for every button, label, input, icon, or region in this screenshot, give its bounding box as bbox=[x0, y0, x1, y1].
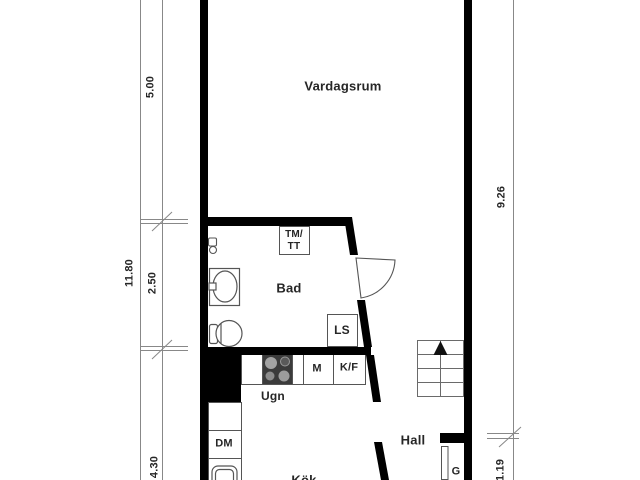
room-label-bath: Bad bbox=[276, 282, 301, 295]
dim-right-upper: 9.26 bbox=[497, 186, 508, 208]
washer-dryer-line2: TT bbox=[285, 241, 303, 253]
micro-label: M bbox=[312, 364, 321, 375]
dim-right-lower: 1.19 bbox=[496, 459, 507, 480]
washer-dryer-line1: TM/ bbox=[285, 229, 303, 241]
walls bbox=[200, 0, 472, 480]
wall-left-exterior bbox=[200, 0, 208, 480]
tap-icon bbox=[209, 238, 217, 254]
fridge-label: K/F bbox=[340, 363, 358, 374]
dim-left-top: 5.00 bbox=[146, 76, 157, 98]
wall-kitchen-hall bbox=[366, 355, 381, 402]
wall-hall-lower bbox=[374, 442, 389, 480]
dim-left-total: 11.80 bbox=[125, 259, 136, 287]
wall-bath-top bbox=[203, 217, 350, 226]
room-label-hall: Hall bbox=[401, 434, 426, 447]
room-label-living: Vardagsrum bbox=[304, 80, 381, 93]
stairs-up-arrow-icon bbox=[434, 341, 448, 355]
washer-dryer-label: TM/ TT bbox=[285, 229, 303, 253]
toilet-icon bbox=[210, 321, 243, 347]
room-label-kitchen: Kök bbox=[291, 474, 316, 480]
bathroom-sink-icon bbox=[209, 269, 240, 306]
oven-label: Ugn bbox=[261, 390, 285, 402]
shaft-block bbox=[208, 353, 241, 402]
dim-left-bottom: 4.30 bbox=[150, 456, 161, 478]
wall-bath-right-upper bbox=[344, 217, 358, 255]
wardrobe-icon bbox=[442, 447, 449, 480]
wall-right-exterior bbox=[464, 0, 472, 480]
kitchen-sink-icon bbox=[212, 466, 237, 480]
bathroom-door-swing bbox=[356, 258, 395, 298]
dim-left-middle: 2.50 bbox=[148, 272, 159, 294]
wall-bath-right-lower bbox=[357, 300, 372, 347]
dimension-lines bbox=[141, 0, 522, 480]
wardrobe-label: G bbox=[452, 467, 461, 478]
ls-closet-label: LS bbox=[334, 324, 350, 336]
dishwasher-label: DM bbox=[215, 439, 233, 450]
stove-icon bbox=[263, 354, 292, 384]
kitchen-cabinet-cell bbox=[209, 403, 242, 431]
floorplan: Vardagsrum Bad Kök Hall TM/ TT LS M K/F … bbox=[0, 0, 640, 480]
wall-hall-stub bbox=[440, 433, 464, 443]
floorplan-graphics bbox=[0, 0, 640, 480]
